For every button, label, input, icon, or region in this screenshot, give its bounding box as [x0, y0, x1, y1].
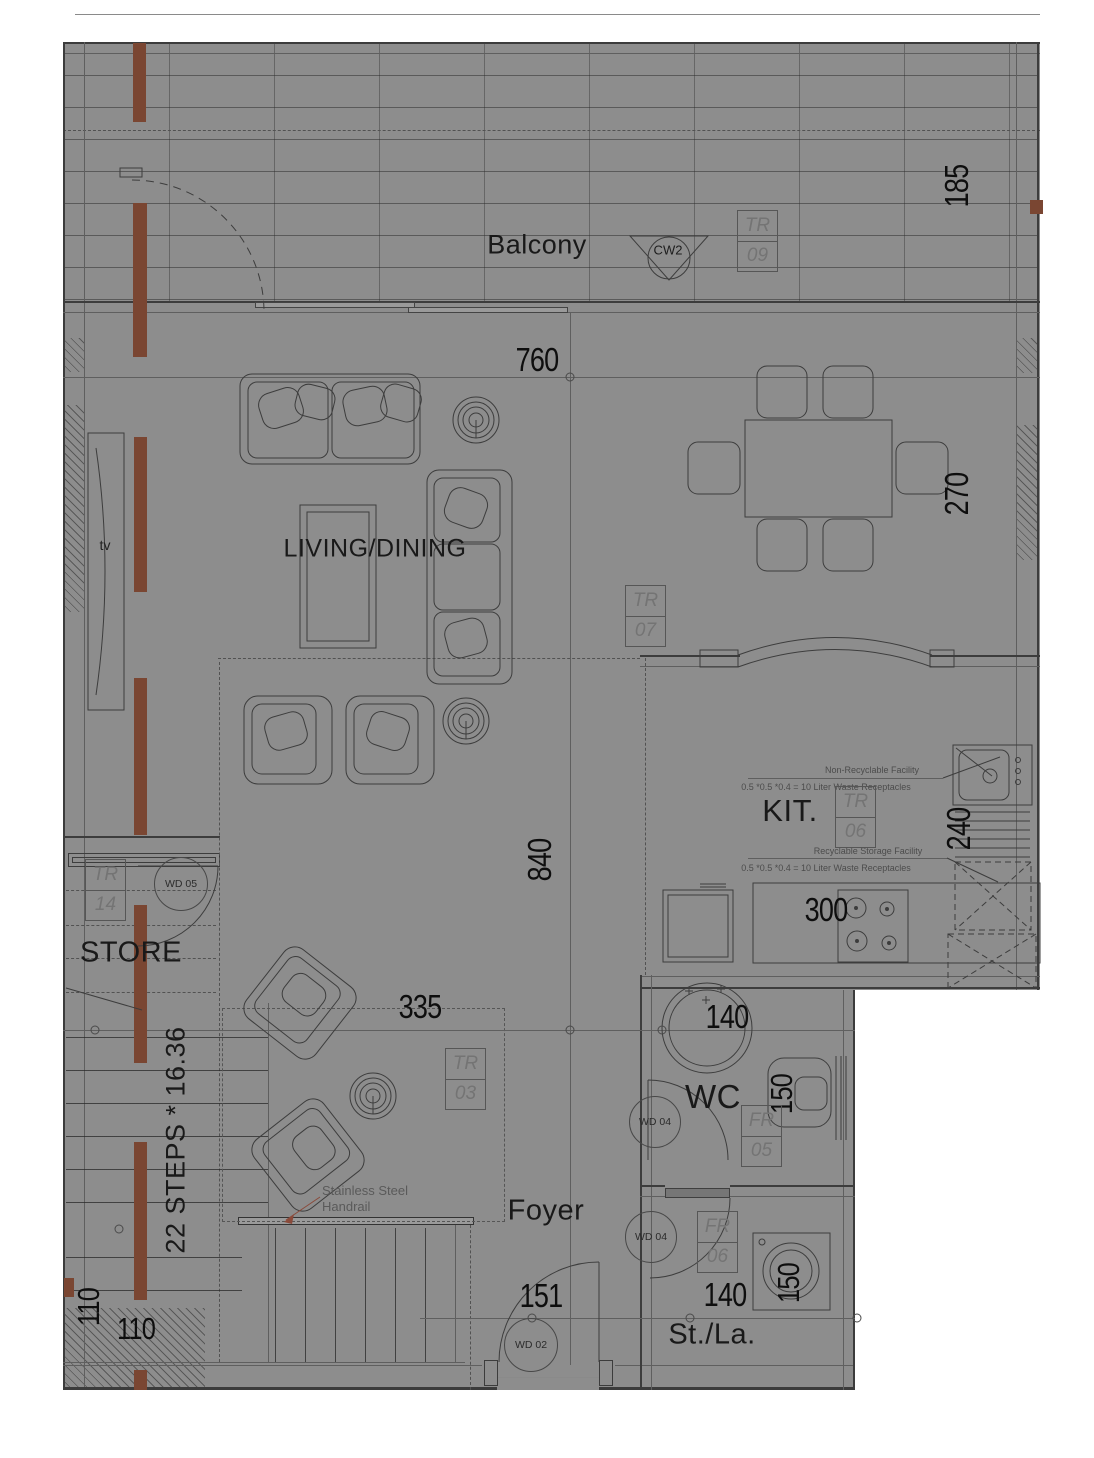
armchair-rotated	[238, 941, 362, 1065]
tag-num: 06	[698, 1243, 737, 1273]
room-label-kitchen: KIT.	[762, 793, 817, 829]
room-label-wc: WC	[685, 1078, 741, 1116]
tv-label: tv	[100, 537, 111, 553]
handrail-note-line1: Stainless Steel	[322, 1183, 408, 1199]
tag-fr06: FR06	[697, 1211, 738, 1273]
dim-760: 760	[516, 341, 559, 379]
tag-code: FR	[698, 1212, 737, 1243]
cw2-label: CW2	[654, 243, 683, 258]
stair-break-line	[66, 988, 142, 1010]
tag-num: 14	[86, 891, 125, 921]
dim-300: 300	[805, 891, 848, 929]
side-table-round	[443, 698, 489, 744]
stairs-note: 22 STEPS * 16.36	[161, 1026, 192, 1253]
side-table-round	[453, 397, 499, 443]
door-label-wd04-stla: WD 04	[625, 1211, 677, 1263]
door-label-wd04-wc: WD 04	[629, 1096, 681, 1148]
dim-270: 270	[938, 473, 976, 516]
handrail-leader	[284, 1197, 320, 1224]
room-label-foyer: Foyer	[508, 1195, 585, 1228]
recyclable-spec: 0.5 *0.5 *0.4 = 10 Liter Waste Receptacl…	[741, 863, 911, 873]
tag-code: TR	[738, 211, 777, 242]
tag-tr14: TR14	[85, 859, 126, 921]
tag-num: 05	[742, 1137, 781, 1167]
dim-110-h: 110	[117, 1311, 155, 1347]
dim-240: 240	[940, 808, 978, 851]
dim-185: 185	[938, 165, 976, 208]
tag-num: 07	[626, 617, 665, 647]
dim-110-v: 110	[71, 1288, 107, 1326]
tag-fr05: FR05	[741, 1105, 782, 1167]
tag-tr06: TR06	[835, 786, 876, 848]
sofa-three-seat	[427, 470, 512, 684]
room-label-store: STORE	[80, 937, 182, 970]
dim-150-stla: 150	[771, 1263, 807, 1303]
handrail-note-line2: Handrail	[322, 1199, 408, 1215]
kitchen-counter	[753, 883, 1040, 963]
tag-num: 06	[836, 818, 875, 848]
tag-tr07: TR07	[625, 585, 666, 647]
handrail-note: Stainless Steel Handrail	[322, 1183, 408, 1214]
room-label-living-dining: LIVING/DINING	[284, 535, 467, 564]
dim-151: 151	[520, 1277, 563, 1315]
tv-unit	[88, 433, 124, 710]
side-table-round	[350, 1073, 396, 1119]
non-recyclable-spec: 0.5 *0.5 *0.4 = 10 Liter Waste Receptacl…	[741, 782, 911, 792]
tag-code: FR	[742, 1106, 781, 1137]
dim-335: 335	[399, 988, 442, 1026]
door-label-text: WD 04	[639, 1116, 671, 1128]
dining-table	[688, 366, 948, 571]
door-label-wd02: WD 02	[504, 1318, 558, 1372]
non-recyclable-title: Non-Recyclable Facility	[825, 765, 919, 775]
tag-tr03: TR03	[445, 1048, 486, 1110]
tag-tr09: TR09	[737, 210, 778, 272]
tag-code: TR	[446, 1049, 485, 1080]
kitchen-cabinet-dashed	[948, 862, 1036, 988]
tag-code: TR	[626, 586, 665, 617]
sofa-two-seat	[240, 374, 424, 464]
floor-plan: Balcony LIVING/DINING KIT. STORE WC Foye…	[0, 0, 1094, 1458]
dim-840: 840	[521, 839, 559, 882]
tag-num: 03	[446, 1080, 485, 1110]
door-label-text: WD 04	[635, 1231, 667, 1243]
dim-140-wc: 140	[706, 998, 749, 1036]
door-label-text: WD 02	[515, 1339, 547, 1351]
armchair	[346, 696, 434, 784]
armchair	[244, 696, 332, 784]
tag-code: TR	[86, 860, 125, 891]
tag-num: 09	[738, 242, 777, 272]
room-label-balcony: Balcony	[487, 230, 587, 261]
stove	[838, 890, 908, 962]
door-label-wd05: WD 05	[154, 857, 208, 911]
balcony-door-swing	[120, 168, 264, 312]
kitchen-counter-arc	[700, 638, 954, 668]
refrigerator	[663, 884, 733, 962]
coffee-table	[300, 505, 376, 648]
door-label-text: WD 05	[165, 878, 197, 890]
tag-code: TR	[836, 787, 875, 818]
room-label-stla: St./La.	[668, 1319, 755, 1352]
dim-140-stla: 140	[704, 1276, 747, 1314]
